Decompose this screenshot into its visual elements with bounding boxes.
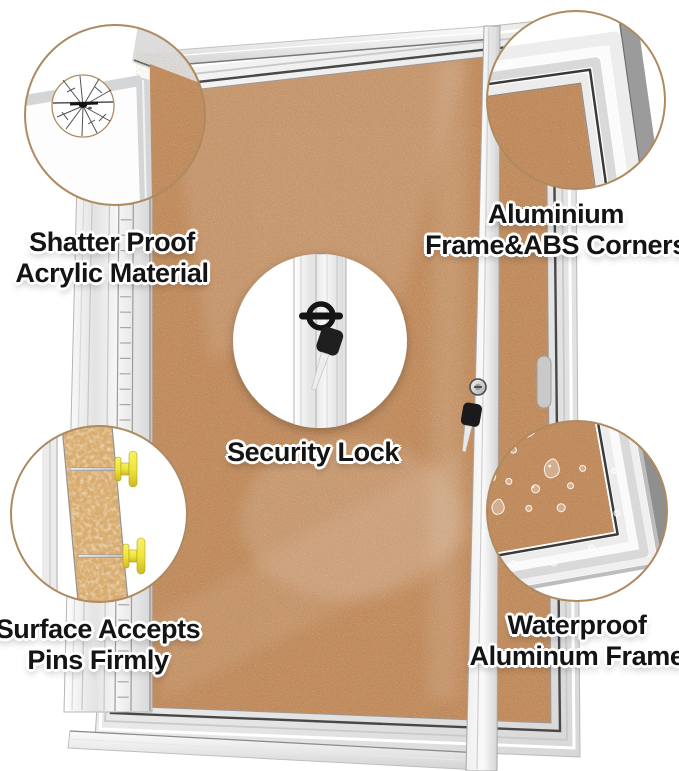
lock-cylinder (470, 379, 486, 395)
label-line: Security Lock (227, 437, 399, 468)
label-line: Aluminium (425, 199, 679, 230)
label-line: Acrylic Material (15, 258, 208, 289)
frame-bumper (537, 356, 551, 408)
label-line: Surface Accepts (0, 614, 200, 645)
label-line: Aluminum Frame (470, 641, 679, 672)
label-security-lock: Security Lock (227, 437, 399, 468)
label-line: Shatter Proof (15, 227, 208, 258)
label-surface-pins: Surface Accepts Pins Firmly (0, 614, 200, 676)
label-shatter-proof: Shatter Proof Acrylic Material (15, 227, 208, 289)
callout-lock-circle (233, 254, 407, 429)
label-line: Frame&ABS Corners (425, 230, 679, 261)
lock-and-key-icon (294, 254, 346, 429)
label-waterproof-frame: Waterproof Aluminum Frame (470, 610, 679, 672)
shattered-acrylic-icon (52, 75, 114, 137)
label-aluminium-corners: Aluminium Frame&ABS Corners (425, 199, 679, 261)
label-line: Pins Firmly (0, 645, 200, 676)
product-infographic: Shatter Proof Acrylic Material Aluminium… (0, 0, 679, 771)
label-line: Waterproof (470, 610, 679, 641)
